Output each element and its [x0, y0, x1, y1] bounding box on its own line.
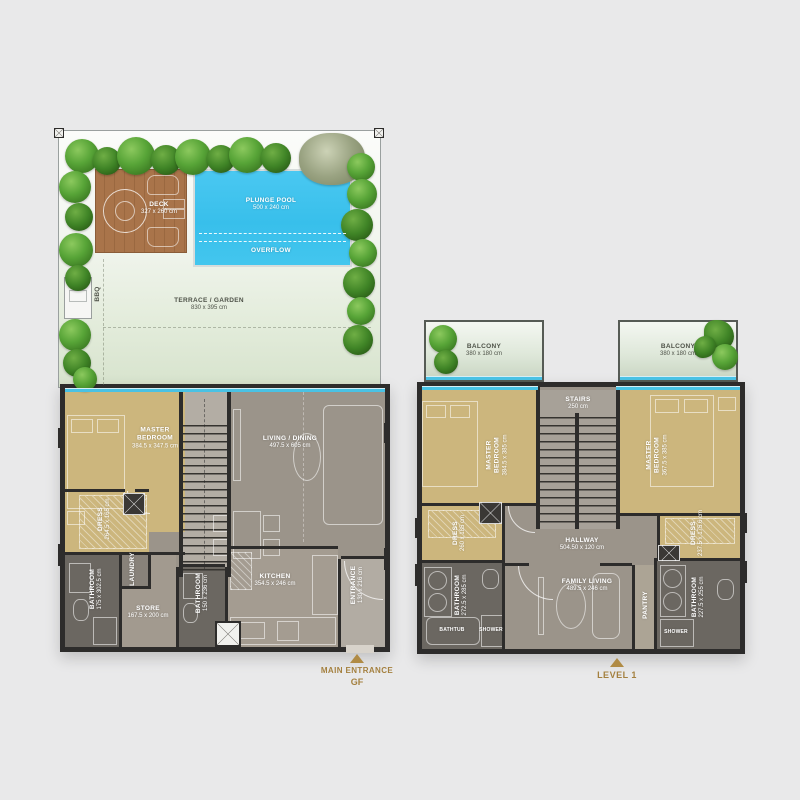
room-label-plunge-pool: PLUNGE POOL 500 x 240 cm: [246, 197, 297, 213]
window-glass: [426, 377, 542, 380]
plant-icon: [429, 325, 457, 353]
floor-plan-gf: DECK 327 x 260 cm PLUNGE POOL 500 x 240 …: [58, 128, 390, 688]
room-label-pantry: PANTRY: [642, 591, 650, 619]
overflow-line: [199, 233, 346, 234]
pillow-icon: [71, 419, 93, 433]
plant-icon: [175, 139, 211, 175]
window-glass: [620, 377, 736, 380]
label-shower-left: SHOWER: [479, 627, 503, 634]
plant-icon: [434, 350, 458, 374]
sink-icon: [428, 593, 447, 612]
shaft-icon: [479, 502, 502, 524]
wall-tab: [384, 423, 390, 443]
plant-icon: [712, 344, 738, 370]
wall-tab: [58, 544, 64, 566]
wall: [179, 564, 225, 567]
plant-icon: [347, 297, 375, 325]
main-entrance-marker: MAIN ENTRANCE GF: [307, 654, 407, 687]
sink-icon: [663, 569, 682, 588]
plant-icon: [65, 203, 93, 231]
label-bathtub: BATHTUB: [439, 627, 464, 634]
room-label-family-living: FAMILY LIVING 489.5 x 246 cm: [562, 578, 613, 594]
room-label-laundry: LAUNDRY: [129, 552, 137, 586]
door-swing: [518, 565, 553, 600]
sink-icon: [663, 592, 682, 611]
room-label-entrance: ENTRANCE 130 x 216 cm: [350, 566, 366, 605]
shower-icon: [93, 617, 117, 645]
corner-pin-icon: [374, 128, 384, 138]
room-label-deck: DECK 327 x 260 cm: [141, 201, 177, 217]
door-swing: [508, 506, 535, 533]
plant-icon: [59, 171, 91, 203]
room-label-bathroom-right: BATHROOM 227.5 x 255 cm: [691, 576, 707, 617]
plant-icon: [229, 137, 265, 173]
plant-icon: [59, 233, 93, 267]
plant-icon: [349, 239, 377, 267]
wall: [65, 489, 125, 492]
shower-tray-icon: [215, 621, 241, 647]
wall: [179, 389, 183, 577]
wall: [228, 546, 338, 549]
wall-tab: [58, 428, 64, 448]
room-label-dress-right: DRESS 237.5 x 175.6 cm: [690, 510, 706, 556]
wall: [620, 513, 740, 516]
room-label-balcony-left: BALCONY 380 x 180 cm: [466, 343, 502, 359]
plant-icon: [343, 325, 373, 355]
wall: [65, 552, 185, 555]
wall: [505, 563, 529, 566]
window-glass: [65, 389, 385, 392]
plant-icon: [59, 319, 91, 351]
label-shower-right: SHOWER: [664, 629, 688, 636]
lounger-icon: [147, 227, 179, 247]
room-label-bathroom-1: BATHROOM 175 x 302.5 cm: [89, 568, 105, 609]
toilet-icon: [482, 569, 499, 589]
wall-tab: [741, 561, 747, 583]
floor-plan-level1: BALCONY 380 x 180 cm BALCONY 380 x 180 c…: [415, 318, 747, 680]
plant-icon: [261, 143, 291, 173]
wall: [119, 555, 122, 647]
pillow-icon: [426, 405, 446, 418]
wall: [600, 563, 632, 566]
wall: [575, 413, 579, 529]
sofa-icon: [323, 405, 383, 525]
gf-indoor-area: MASTER BEDROOM 384.5 x 347.5 cm LIVING /…: [60, 384, 390, 652]
toilet-icon: [73, 599, 89, 621]
plant-icon: [341, 209, 373, 241]
level1-marker: LEVEL 1: [567, 658, 667, 680]
sink-icon: [428, 571, 447, 590]
window-glass: [616, 387, 740, 390]
room-label-bathroom-left: BATHROOM 272.5 x 285 cm: [454, 574, 470, 615]
wall-tab: [741, 513, 747, 533]
plant-icon: [73, 367, 97, 391]
wall: [338, 559, 341, 647]
plant-icon: [65, 265, 91, 291]
staircase-guide: [204, 399, 205, 569]
room-label-master-bedroom: MASTER BEDROOM 384.5 x 347.5 cm: [129, 427, 181, 452]
room-label-stairs: STAIRS 250 cm: [565, 396, 590, 412]
room-label-bathroom-2: BATHROOM 150 x 236 cm: [195, 573, 211, 613]
room-label-balcony-right: BALCONY 380 x 180 cm: [660, 343, 696, 359]
stove-icon: [277, 621, 299, 641]
floorplan-canvas: DECK 327 x 260 cm PLUNGE POOL 500 x 240 …: [0, 0, 800, 800]
arrow-up-icon: [610, 658, 624, 667]
entrance-opening: [346, 645, 374, 653]
room-label-kitchen: KITCHEN 354.5 x 246 cm: [254, 573, 295, 589]
plant-icon: [347, 153, 375, 181]
wall: [616, 387, 620, 529]
round-table-icon: [115, 201, 135, 221]
pillow-icon: [655, 399, 679, 413]
arrow-up-icon: [350, 654, 364, 663]
wall: [135, 489, 149, 492]
plant-icon: [343, 267, 375, 299]
wall: [422, 560, 505, 563]
wall: [148, 555, 151, 589]
label-overflow: OVERFLOW: [251, 247, 291, 255]
wall-tab: [384, 548, 390, 570]
wall: [536, 387, 540, 529]
overflow-line: [199, 241, 346, 242]
wall: [502, 563, 505, 649]
shaft-icon: [123, 493, 145, 515]
terrace-garden-area: DECK 327 x 260 cm PLUNGE POOL 500 x 240 …: [58, 130, 381, 388]
room-label-store: STORE 167.5 x 200 cm: [127, 605, 168, 621]
kitchen-sink-icon: [239, 622, 265, 639]
room-label-master-right: MASTER BEDROOM 367.5 x 385 cm: [646, 432, 671, 478]
level1-indoor-area: BATHTUB SHOWER SHOWER STAIRS: [417, 382, 745, 654]
wall: [632, 565, 635, 649]
wall-tab: [415, 518, 421, 538]
plant-icon: [117, 137, 155, 175]
washbasin-icon: [658, 545, 680, 561]
pillow-icon: [684, 399, 708, 413]
plant-icon: [347, 179, 377, 209]
pillow-icon: [97, 419, 119, 433]
chair-icon: [263, 515, 280, 532]
bbq-grill-line: [69, 290, 87, 302]
pillow-icon: [450, 405, 470, 418]
wall: [176, 567, 179, 647]
room-label-master-left: MASTER BEDROOM 384.5 x 385 cm: [486, 432, 511, 478]
corner-pin-icon: [54, 128, 64, 138]
tv-unit-icon: [233, 409, 241, 481]
room-label-hallway: HALLWAY 504.50 x 120 cm: [560, 537, 604, 553]
sink-icon: [69, 563, 91, 593]
paving-guide: [103, 259, 104, 385]
toilet-icon: [717, 579, 734, 600]
room-label-terrace: TERRACE / GARDEN 830 x 395 cm: [174, 297, 244, 313]
double-height-guide: [303, 392, 304, 542]
room-label-bbq: BBQ: [94, 286, 102, 301]
room-label-dress-left: DRESS 260 x 185 cm: [452, 515, 468, 551]
wall: [502, 506, 505, 563]
wall: [341, 556, 385, 559]
window-glass: [422, 387, 538, 390]
lounger-icon: [147, 175, 179, 195]
wall-tab: [415, 564, 421, 586]
wall: [122, 586, 151, 589]
room-label-dress: DRESS 264.5 x 165 cm: [97, 498, 113, 539]
kitchen-cabinet-icon: [230, 552, 252, 590]
kitchen-counter-icon: [312, 555, 338, 615]
paving-guide: [103, 327, 371, 328]
wall: [654, 561, 657, 649]
nightstand-icon: [718, 397, 736, 411]
room-label-living-dining: LIVING / DINING 497.5 x 605 cm: [263, 435, 317, 451]
room-store: [151, 555, 176, 589]
